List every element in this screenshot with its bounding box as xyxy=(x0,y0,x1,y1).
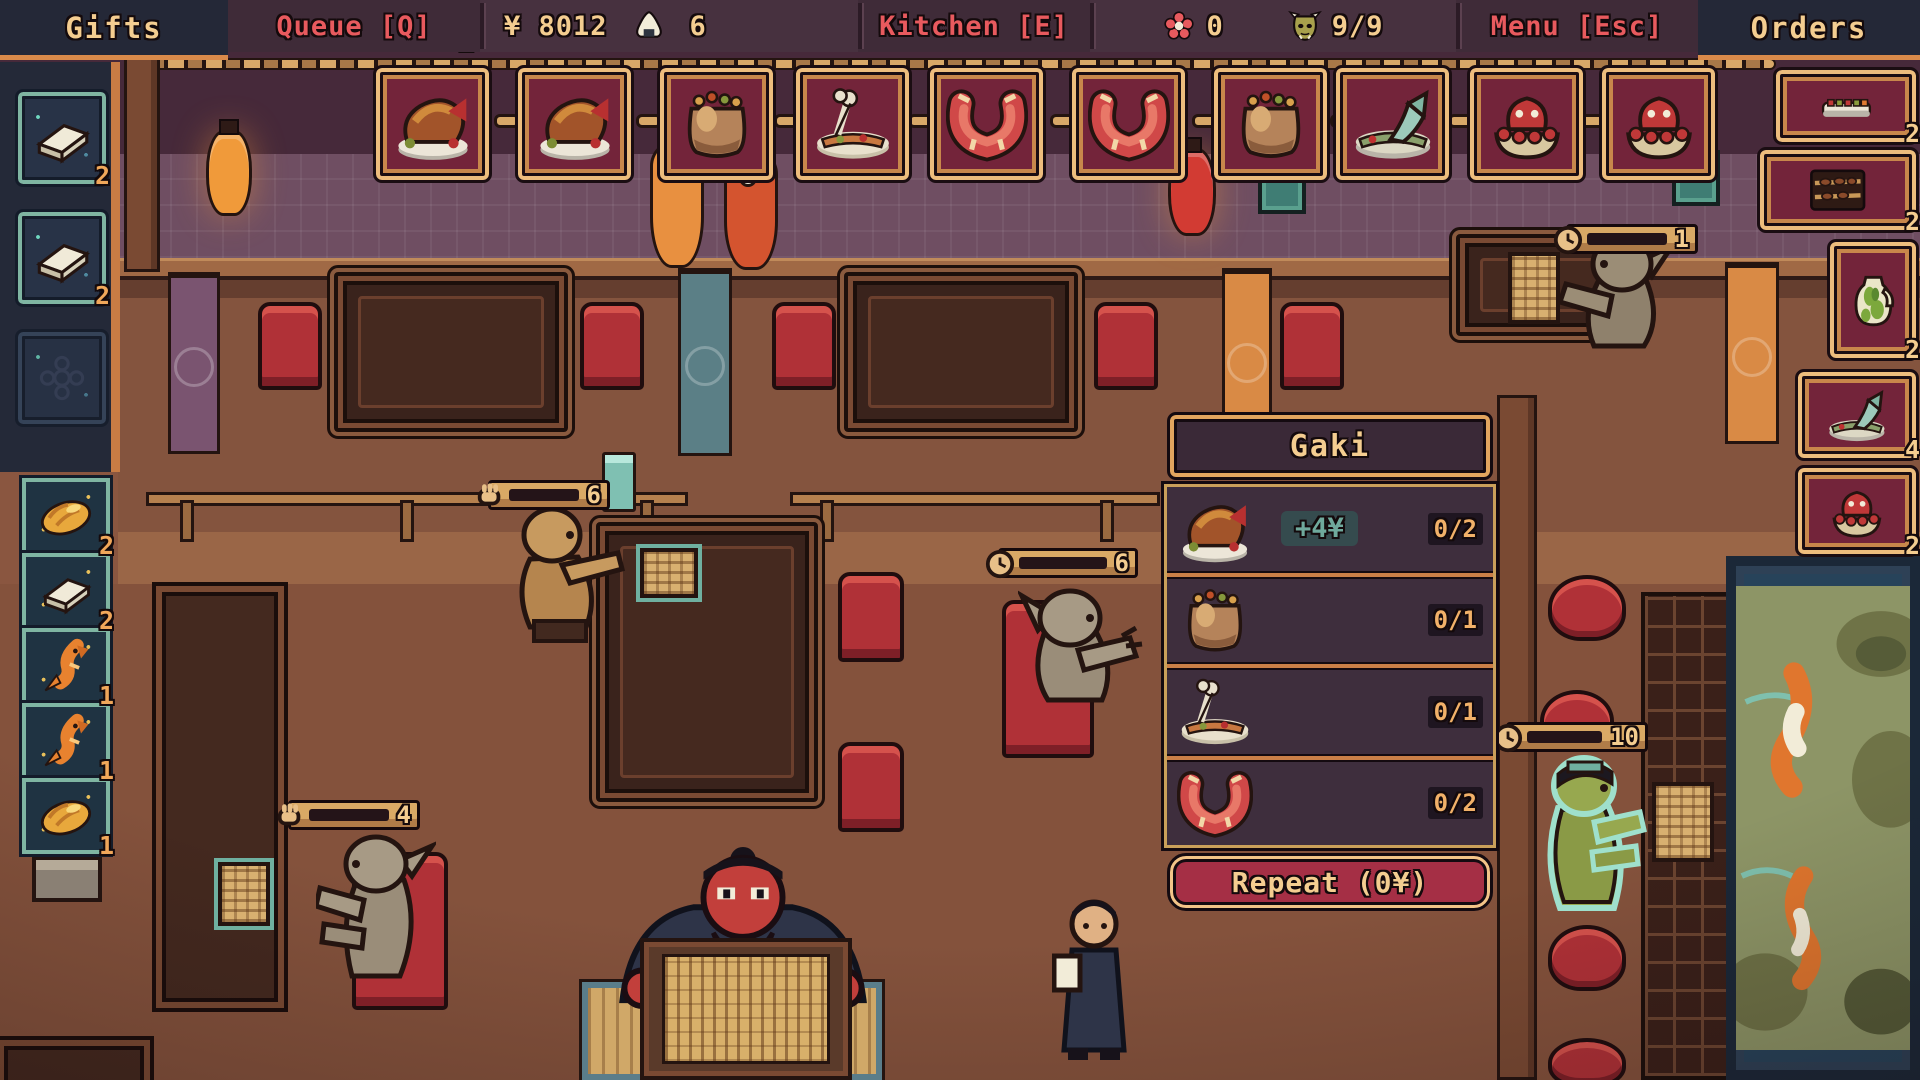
serve-count: 6 xyxy=(587,481,601,509)
shrimp-icon xyxy=(1088,83,1170,165)
serve-bar: 6 xyxy=(488,480,610,510)
recipe-slot[interactable] xyxy=(1470,68,1583,180)
customer-gaki[interactable] xyxy=(1018,580,1146,716)
tofu-icon xyxy=(29,225,95,291)
orders-tab[interactable]: Orders xyxy=(1698,0,1920,60)
supply-slot[interactable]: 2 xyxy=(22,478,110,554)
hand-icon xyxy=(275,801,305,831)
customer-name: Gaki xyxy=(1290,429,1370,464)
shrimp-icon xyxy=(946,83,1028,165)
supply-slot[interactable]: 1 xyxy=(22,628,110,704)
money-counter: ¥ 8012 xyxy=(504,11,608,42)
item-progress: 0/1 xyxy=(1428,696,1483,728)
repeat-order-button[interactable]: Repeat (0¥) xyxy=(1170,856,1490,908)
order-item-row[interactable]: +4¥ 0/2 xyxy=(1167,487,1493,571)
customer-kappa-selected[interactable] xyxy=(1528,748,1648,928)
gift-slot-empty[interactable] xyxy=(18,332,106,424)
gifts-tab-label: Gifts xyxy=(65,11,162,45)
octopus-bowl-icon xyxy=(1486,83,1568,165)
gift-slot[interactable]: 2 xyxy=(18,92,106,184)
oni-mask-icon xyxy=(1288,9,1322,43)
menu-button[interactable]: Menu [Esc] xyxy=(1491,11,1664,42)
supply-count: 2 xyxy=(99,606,114,635)
chair xyxy=(1280,302,1344,390)
koi-fish-icon xyxy=(36,636,96,696)
supply-slot[interactable]: 1 xyxy=(22,703,110,779)
supply-count: 2 xyxy=(99,531,114,560)
koi-pond xyxy=(1726,556,1920,1080)
gift-count: 2 xyxy=(95,161,110,190)
railing-post xyxy=(180,500,194,542)
supply-slot[interactable]: 1 xyxy=(22,778,110,854)
order-slot[interactable]: 4 xyxy=(1798,372,1916,458)
clock-icon xyxy=(1553,225,1583,255)
supply-slot[interactable]: 2 xyxy=(22,553,110,629)
roast-chicken-icon xyxy=(534,83,616,165)
clock-icon xyxy=(985,549,1015,579)
corner-cabinet xyxy=(0,1036,154,1080)
orange-lantern xyxy=(206,130,252,216)
clay-pot-icon xyxy=(1177,582,1253,658)
koi-fish-icon xyxy=(36,711,96,771)
roast-chicken-icon xyxy=(1177,491,1253,567)
recipe-slot[interactable] xyxy=(1602,68,1715,180)
recipe-slot[interactable] xyxy=(1336,68,1449,180)
supply-count: 1 xyxy=(99,681,114,710)
gifts-tab[interactable]: Gifts xyxy=(0,0,228,60)
banner-teal xyxy=(678,268,732,456)
stool xyxy=(1548,575,1626,641)
bone-plate-icon xyxy=(1177,674,1253,750)
golden-loaf-icon xyxy=(36,486,96,546)
recipe-slot[interactable] xyxy=(930,68,1043,180)
tofu-icon xyxy=(36,561,96,621)
order-count: 2 xyxy=(1905,119,1920,148)
order-slot[interactable]: 2 xyxy=(1798,468,1916,554)
recipe-slot[interactable] xyxy=(1214,68,1327,180)
patience-count: 10 xyxy=(1610,723,1639,751)
item-progress: 0/2 xyxy=(1428,513,1483,545)
recipe-slot[interactable] xyxy=(376,68,489,180)
empty-slot-icon xyxy=(29,345,95,411)
railing-post xyxy=(820,500,834,542)
order-count: 4 xyxy=(1905,435,1920,464)
order-count: 2 xyxy=(1905,531,1920,560)
serve-bar: 4 xyxy=(288,800,420,830)
green-jug-icon xyxy=(1843,258,1904,342)
patience-count: 6 xyxy=(1115,549,1129,577)
stool xyxy=(1548,925,1626,991)
item-progress: 0/1 xyxy=(1428,604,1483,636)
octopus-bowl-icon xyxy=(1618,83,1700,165)
mask-counter: 9/9 xyxy=(1332,11,1384,42)
order-count: 2 xyxy=(1905,335,1920,364)
rice-counter: 6 xyxy=(690,11,707,42)
menu-card[interactable] xyxy=(640,548,698,598)
chair xyxy=(838,572,904,662)
chair xyxy=(580,302,644,390)
game-stage: 6 6 1 10 4 Queue [Q] ¥ 8012 6 Kitchen [E… xyxy=(0,0,1920,1080)
supply-count: 1 xyxy=(99,756,114,785)
menu-card[interactable] xyxy=(218,862,270,926)
order-item-row[interactable]: 0/2 xyxy=(1167,762,1493,846)
menu-card[interactable] xyxy=(1652,782,1714,862)
tofu-icon xyxy=(29,105,95,171)
fish-platter-icon xyxy=(1814,385,1900,446)
supply-stand xyxy=(32,856,102,902)
order-slot[interactable]: 2 xyxy=(1830,242,1916,358)
patience-bar: 6 xyxy=(998,548,1138,578)
sakura-icon xyxy=(1162,9,1196,43)
railing-post xyxy=(1100,500,1114,542)
kitchen-button[interactable]: Kitchen [E] xyxy=(879,11,1069,42)
repeat-order-label: Repeat (0¥) xyxy=(1232,866,1428,899)
dining-table xyxy=(840,268,1082,436)
order-item-row[interactable]: 0/1 xyxy=(1167,579,1493,663)
chair xyxy=(1094,302,1158,390)
chair xyxy=(838,742,904,832)
patience-count: 1 xyxy=(1675,225,1689,253)
golden-loaf-icon xyxy=(36,786,96,846)
clay-pot-icon xyxy=(676,83,758,165)
item-progress: 0/2 xyxy=(1428,787,1483,819)
recipe-slot[interactable] xyxy=(660,68,773,180)
recipe-slot[interactable] xyxy=(1072,68,1185,180)
sushi-row-icon xyxy=(1795,81,1898,131)
gift-count: 2 xyxy=(95,281,110,310)
clay-pot-icon xyxy=(1230,83,1312,165)
side-counter xyxy=(152,582,288,1012)
supply-count: 1 xyxy=(99,831,114,860)
order-popup-header: Gaki xyxy=(1170,415,1490,477)
customer-bald-oni[interactable] xyxy=(500,498,630,650)
onigiri-icon xyxy=(632,9,666,43)
chair xyxy=(258,302,322,390)
order-slot[interactable]: 2 xyxy=(1776,70,1916,142)
dining-table xyxy=(330,268,572,436)
clock-icon xyxy=(1493,723,1523,753)
bone-plate-icon xyxy=(812,83,894,165)
octopus-bowl-icon xyxy=(1814,481,1900,542)
fish-platter-icon xyxy=(1352,83,1434,165)
shrimp-icon xyxy=(1177,765,1253,841)
queue-button[interactable]: Queue [Q] xyxy=(276,11,431,42)
order-count: 2 xyxy=(1905,207,1920,236)
serve-count: 4 xyxy=(397,801,411,829)
banner-orange xyxy=(1725,262,1779,444)
patience-bar: 10 xyxy=(1506,722,1648,752)
chair xyxy=(772,302,836,390)
flower-counter: 0 xyxy=(1206,11,1223,42)
patience-bar: 1 xyxy=(1566,224,1698,254)
bamboo-mat xyxy=(662,954,830,1064)
roast-chicken-icon xyxy=(392,83,474,165)
stool xyxy=(1548,1038,1626,1080)
order-slot[interactable]: 2 xyxy=(1760,150,1916,230)
bonus-chip: +4¥ xyxy=(1281,511,1358,546)
waiter[interactable] xyxy=(1052,890,1136,1066)
order-item-row[interactable]: 0/1 xyxy=(1167,670,1493,754)
gift-slot[interactable]: 2 xyxy=(18,212,106,304)
supply-strip: 2 2 1 1 1 xyxy=(22,478,112,856)
host-desk[interactable] xyxy=(640,938,852,1080)
recipe-slot[interactable] xyxy=(796,68,909,180)
order-popup: +4¥ 0/2 0/1 0/1 0/2 xyxy=(1164,484,1496,848)
skewer-rack-icon xyxy=(1780,162,1895,218)
orders-tab-label: Orders xyxy=(1751,11,1868,45)
hand-icon xyxy=(475,481,505,511)
railing-post xyxy=(400,500,414,542)
recipe-slot[interactable] xyxy=(518,68,631,180)
customer-goblin-left[interactable] xyxy=(316,826,436,996)
menu-card[interactable] xyxy=(1508,252,1560,324)
wood-pillar-left xyxy=(124,52,160,272)
banner-purple xyxy=(168,272,220,454)
